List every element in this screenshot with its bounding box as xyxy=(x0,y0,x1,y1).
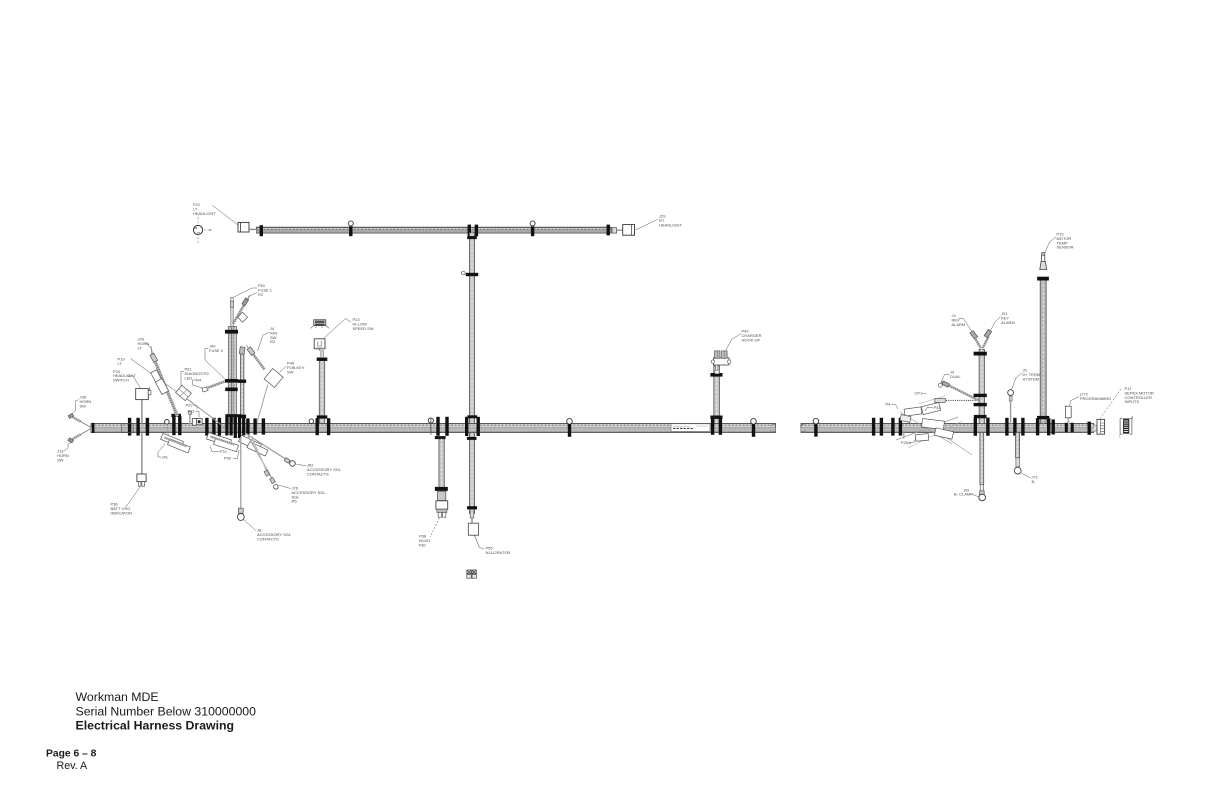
svg-text:P4: P4 xyxy=(886,402,892,407)
svg-text:1: 1 xyxy=(1119,435,1121,439)
svg-text:R4: R4 xyxy=(196,378,202,383)
svg-text:Serial Number Below 310000000: Serial Number Below 310000000 xyxy=(76,704,257,718)
svg-text:J69: J69 xyxy=(964,489,970,493)
svg-text:J41: J41 xyxy=(162,455,169,460)
svg-text:8: 8 xyxy=(1132,416,1134,420)
svg-text:Electrical Harness Drawing: Electrical Harness Drawing xyxy=(76,719,235,733)
svg-text:P90: P90 xyxy=(224,456,232,461)
svg-text:Rev. A: Rev. A xyxy=(57,760,89,772)
svg-text:P21: P21 xyxy=(188,409,196,414)
svg-text:P70: P70 xyxy=(220,449,228,454)
svg-text:Workman MDE: Workman MDE xyxy=(76,690,159,704)
svg-text:P41: P41 xyxy=(934,405,942,410)
svg-text:Page 6 – 8: Page 6 – 8 xyxy=(46,749,97,760)
svg-text:CP1: CP1 xyxy=(915,391,924,396)
